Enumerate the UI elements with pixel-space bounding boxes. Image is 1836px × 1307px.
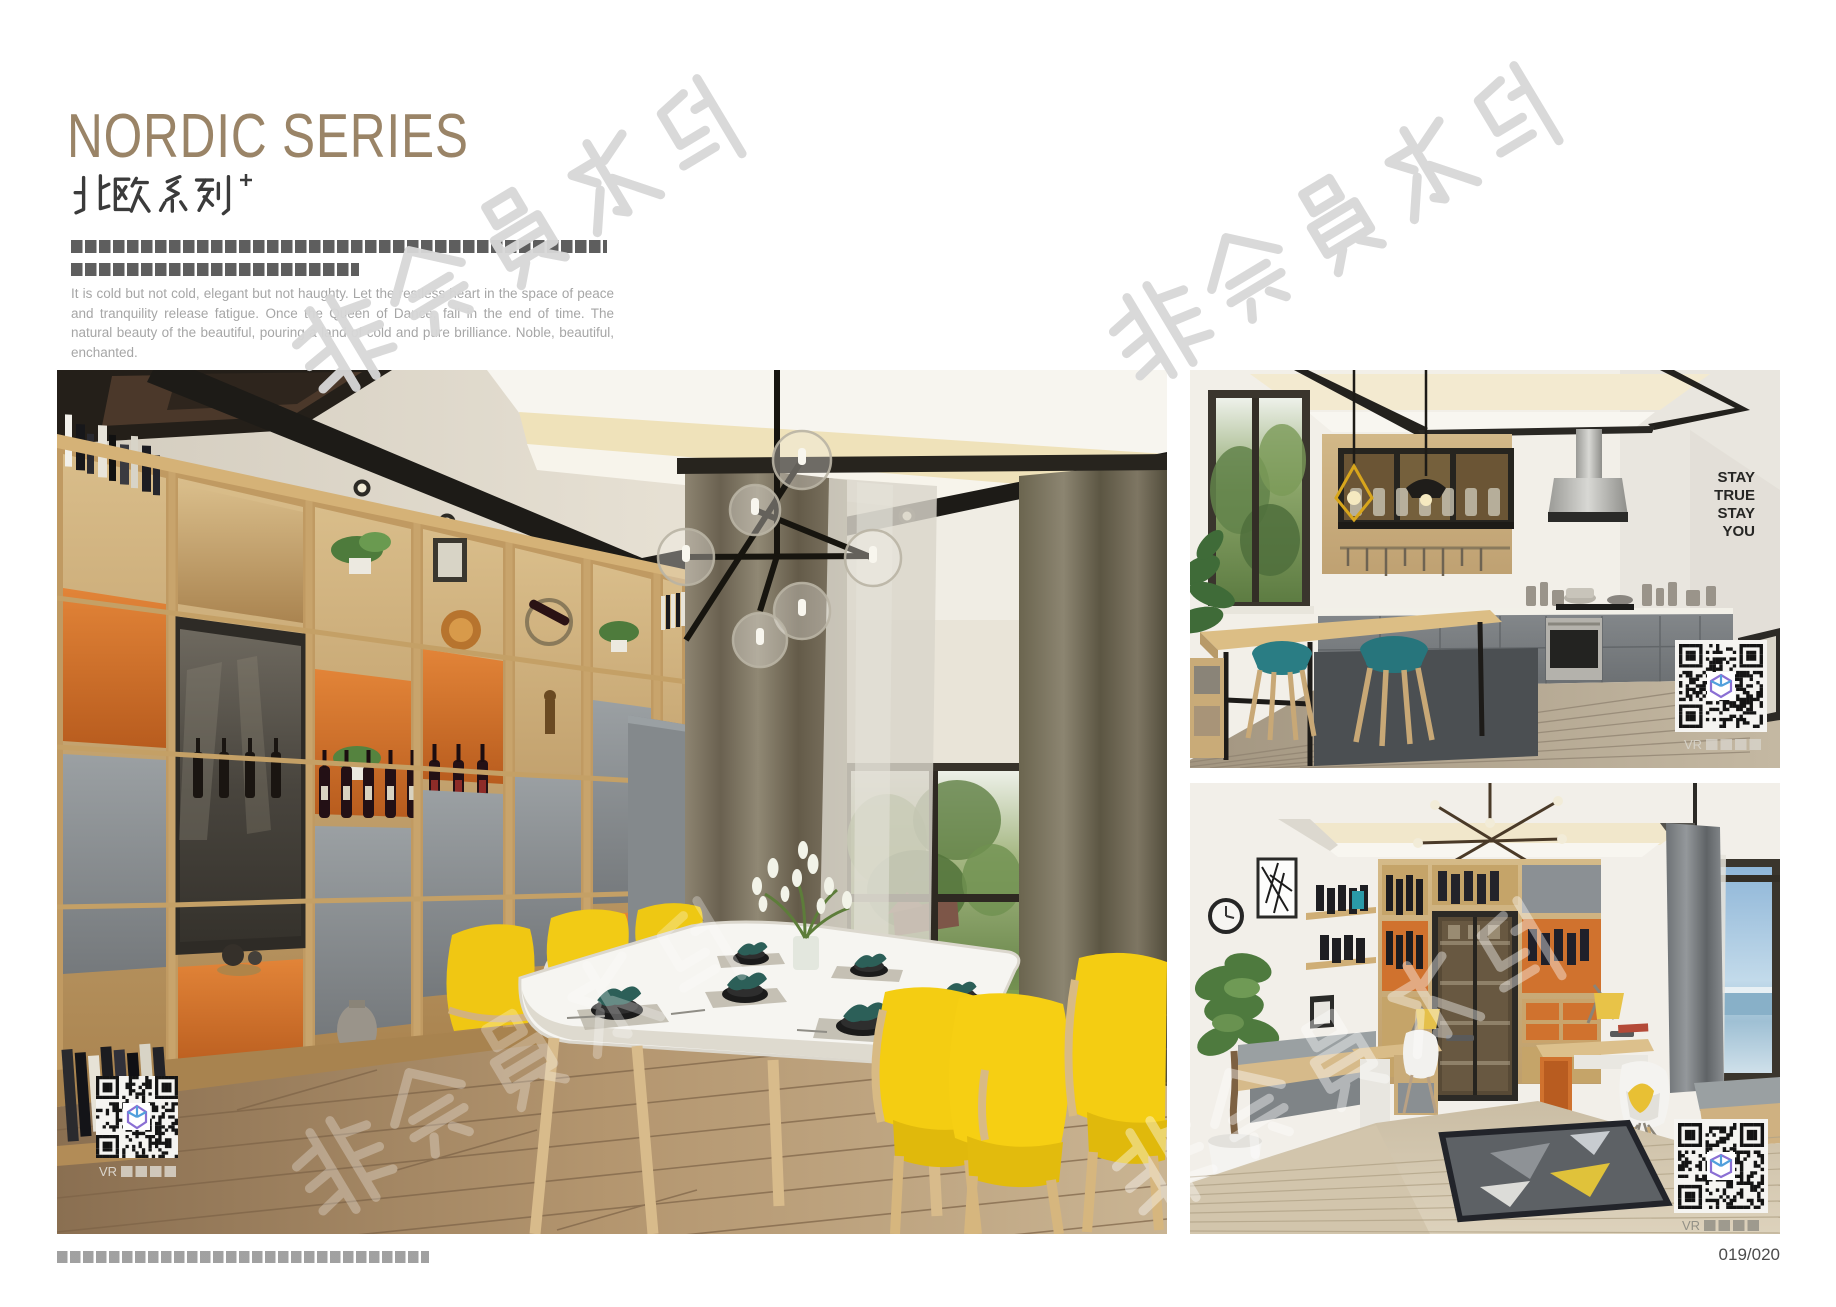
svg-text:YOU: YOU bbox=[1722, 523, 1755, 540]
svg-text:TRUE: TRUE bbox=[1714, 487, 1755, 504]
svg-text:VR: VR bbox=[99, 1164, 117, 1179]
svg-text:STAY: STAY bbox=[1717, 505, 1755, 522]
svg-text:VR: VR bbox=[1682, 1218, 1700, 1233]
svg-text:VR: VR bbox=[1684, 737, 1702, 752]
svg-text:STAY: STAY bbox=[1717, 469, 1755, 486]
